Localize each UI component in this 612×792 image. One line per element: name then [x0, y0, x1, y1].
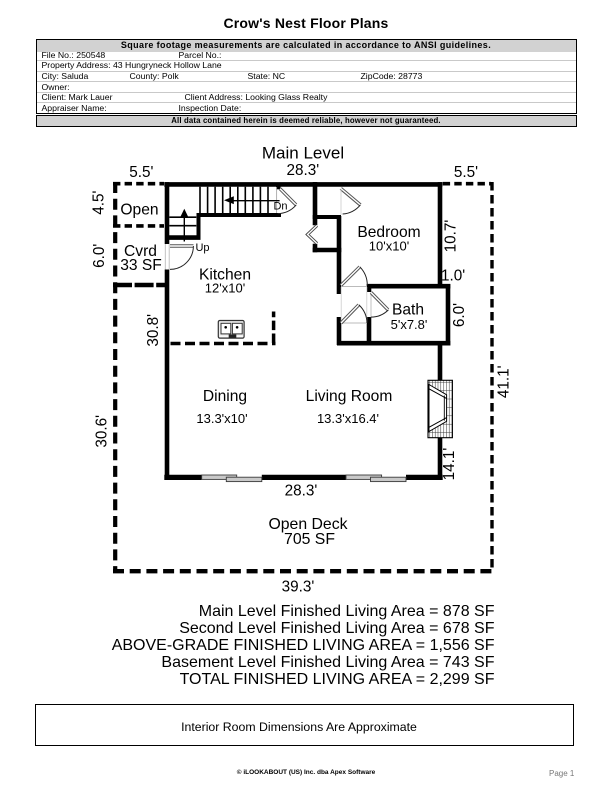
svg-text:39.3': 39.3' [282, 579, 315, 596]
svg-text:705 SF: 705 SF [284, 531, 335, 548]
svg-text:13.3'x10': 13.3'x10' [196, 411, 247, 426]
svg-text:14.1': 14.1' [441, 448, 458, 481]
svg-text:5.5': 5.5' [129, 164, 153, 181]
svg-text:Open: Open [120, 202, 158, 219]
svg-text:10.7': 10.7' [443, 220, 460, 253]
svg-text:10'x10': 10'x10' [369, 239, 409, 254]
svg-text:13.3'x16.4': 13.3'x16.4' [317, 411, 379, 426]
svg-text:6.0': 6.0' [451, 303, 468, 327]
svg-text:28.3': 28.3' [286, 162, 319, 179]
svg-text:5.5': 5.5' [454, 164, 478, 181]
svg-text:Living Room: Living Room [306, 388, 393, 405]
svg-text:Bath: Bath [392, 302, 424, 319]
svg-text:1.0': 1.0' [441, 267, 465, 284]
svg-text:Dining: Dining [203, 388, 247, 405]
svg-text:Main Level: Main Level [262, 144, 344, 163]
svg-text:30.6': 30.6' [93, 415, 110, 448]
svg-text:4.5': 4.5' [91, 191, 108, 215]
svg-text:41.1': 41.1' [495, 365, 512, 398]
svg-text:6.0': 6.0' [91, 244, 108, 268]
svg-text:33 SF: 33 SF [120, 257, 162, 274]
svg-text:Dn: Dn [273, 201, 287, 213]
svg-text:12'x10': 12'x10' [205, 280, 245, 295]
svg-text:30.8': 30.8' [145, 314, 162, 347]
svg-text:5'x7.8': 5'x7.8' [391, 317, 428, 332]
svg-text:28.3': 28.3' [285, 483, 318, 500]
svg-text:Up: Up [195, 242, 209, 254]
